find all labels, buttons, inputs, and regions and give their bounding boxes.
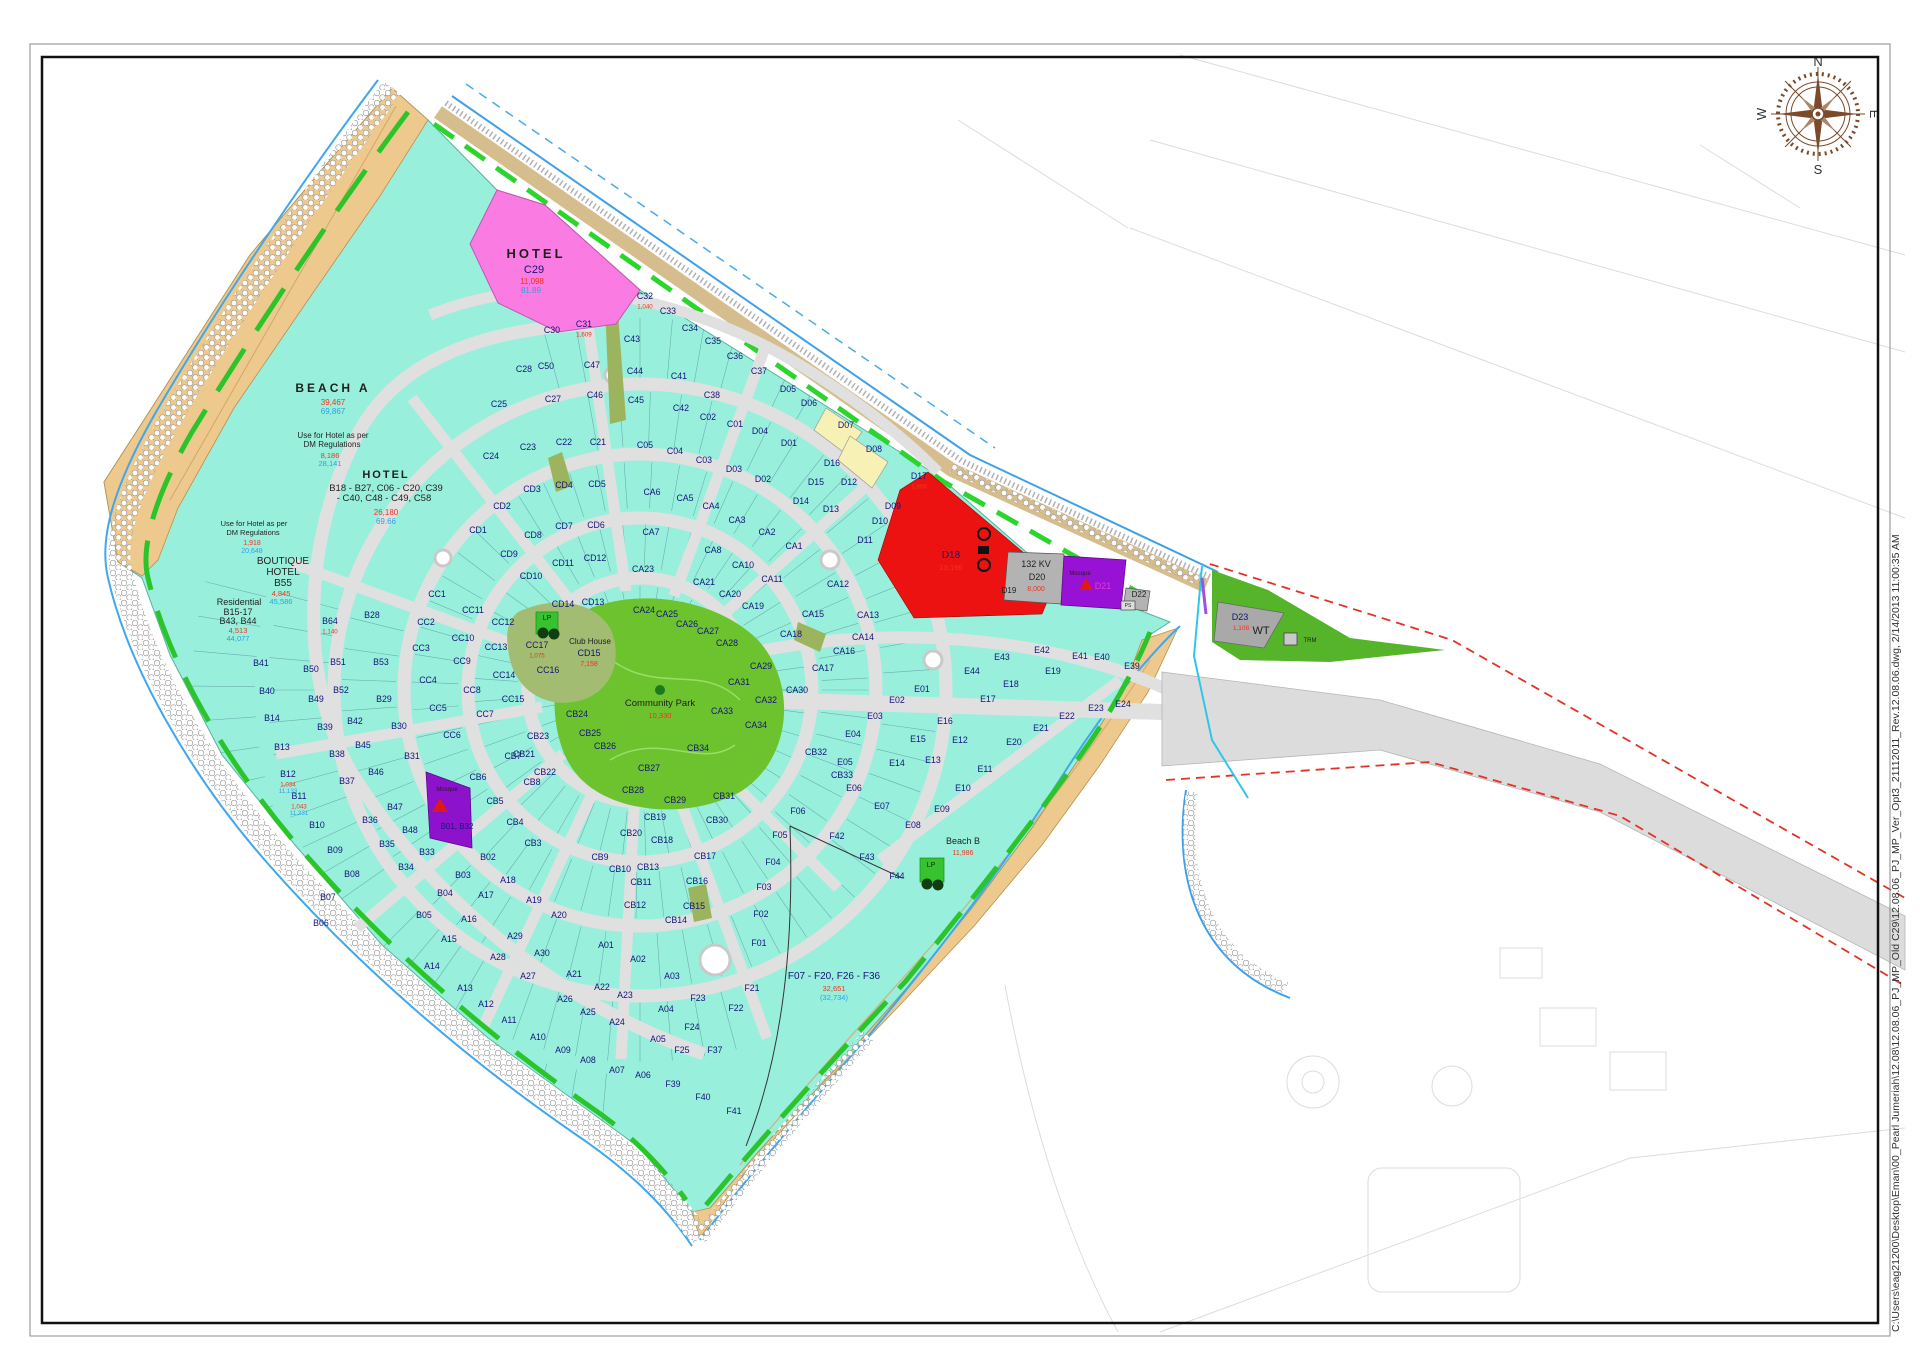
plot-label-E07: E07 bbox=[874, 801, 890, 811]
plot-label-C21: C21 bbox=[590, 437, 606, 447]
plot-label-F24: F24 bbox=[684, 1022, 699, 1032]
plot-label-E20: E20 bbox=[1006, 737, 1022, 747]
plot-label-CB19: CB19 bbox=[644, 812, 666, 822]
plot-label-CA2: CA2 bbox=[758, 527, 775, 537]
plot-label-CB31: CB31 bbox=[713, 791, 735, 801]
map-label-57: B01, B32 bbox=[441, 822, 474, 831]
compass-east: E bbox=[1867, 110, 1882, 119]
map-label-32: D19 bbox=[1002, 586, 1017, 595]
plot-label-B41: B41 bbox=[253, 658, 269, 668]
plot-label-A26: A26 bbox=[557, 994, 573, 1004]
plot-label-D13: D13 bbox=[823, 504, 839, 514]
plot-label-E18: E18 bbox=[1003, 679, 1019, 689]
parcel-line bbox=[320, 960, 365, 1004]
plot-label-CA10: CA10 bbox=[732, 560, 754, 570]
plot-label-E08: E08 bbox=[905, 820, 921, 830]
map-label-30: D18 bbox=[942, 550, 961, 561]
plot-label-C31: C31 bbox=[576, 319, 592, 329]
plot-label-B08: B08 bbox=[344, 869, 360, 879]
plot-label-E14: E14 bbox=[889, 758, 905, 768]
roundabout-south bbox=[700, 945, 730, 975]
compass-south: S bbox=[1814, 162, 1823, 177]
map-label-40: D23 bbox=[1232, 612, 1249, 622]
plot-label-CA32: CA32 bbox=[755, 695, 777, 705]
drawing-sheet: C30C311,609C321,040C33C34C35C36C37C43C50… bbox=[0, 0, 1920, 1357]
plot-label-E40: E40 bbox=[1094, 652, 1110, 662]
plot-label-C45: C45 bbox=[628, 395, 644, 405]
map-label-42: WT bbox=[1252, 625, 1269, 637]
plot-label-B45: B45 bbox=[355, 740, 371, 750]
plot-label-A01: A01 bbox=[598, 940, 614, 950]
plot-label-A11: A11 bbox=[502, 1015, 517, 1025]
map-label-2: 11,098 bbox=[520, 277, 544, 286]
plot-label-CA3: CA3 bbox=[728, 515, 745, 525]
plot-label-E42: E42 bbox=[1034, 645, 1050, 655]
plot-label-CD12: CD12 bbox=[584, 553, 607, 563]
plot-label-B14: B14 bbox=[264, 713, 280, 723]
plot-area-B64: 1,140 bbox=[322, 629, 338, 636]
plot-label-CB6: CB6 bbox=[469, 772, 486, 782]
plot-area-CC17: 1,075 bbox=[529, 653, 545, 660]
plot-label-C05: C05 bbox=[637, 440, 653, 450]
plot-label-CB22: CB22 bbox=[534, 767, 556, 777]
plot-label-A04: A04 bbox=[658, 1004, 674, 1014]
plot-label-C35: C35 bbox=[705, 336, 721, 346]
plot-label-F23: F23 bbox=[690, 993, 705, 1003]
plot-label-E43: E43 bbox=[994, 652, 1010, 662]
plot-label-CC14: CC14 bbox=[493, 670, 516, 680]
plot-label-D17: D17 bbox=[911, 471, 927, 481]
plot-label-CC3: CC3 bbox=[412, 643, 430, 653]
plot-label-CC1: CC1 bbox=[428, 589, 446, 599]
plot-label-CD2: CD2 bbox=[493, 501, 511, 511]
plot-label-A27: A27 bbox=[520, 971, 536, 981]
east-corridor bbox=[1162, 564, 1905, 998]
plot-label-CA23: CA23 bbox=[632, 564, 654, 574]
plot-label-CB28: CB28 bbox=[622, 785, 644, 795]
map-label-8: DM Regulations bbox=[304, 440, 361, 449]
plot-label-E10: E10 bbox=[955, 783, 971, 793]
plot-label-CC15: CC15 bbox=[502, 694, 525, 704]
map-label-25: Residential bbox=[217, 597, 262, 607]
plot-label-CB24: CB24 bbox=[566, 709, 588, 719]
plot-label-D14: D14 bbox=[793, 496, 809, 506]
plot-label-B07: B07 bbox=[320, 892, 336, 902]
plot-label-B03: B03 bbox=[455, 870, 471, 880]
map-label-27: B43, B44 bbox=[219, 616, 256, 626]
plot-area-C32: 1,040 bbox=[637, 304, 653, 311]
parcel-line bbox=[346, 981, 387, 1029]
plot-label-B37: B37 bbox=[339, 776, 355, 786]
map-label-5: 39,467 bbox=[321, 398, 346, 407]
plot-label-A17: A17 bbox=[478, 890, 494, 900]
map-label-4: BEACH A bbox=[295, 381, 370, 395]
plot-label-B31: B31 bbox=[404, 751, 420, 761]
plot-label-CC7: CC7 bbox=[476, 709, 494, 719]
plot-label-D10: D10 bbox=[872, 516, 888, 526]
utility-square-icon bbox=[978, 546, 989, 554]
plot-label-C01: C01 bbox=[727, 419, 743, 429]
plot-label-C38: C38 bbox=[704, 390, 720, 400]
map-label-46: Club House bbox=[569, 637, 611, 646]
plot-label-F42: F42 bbox=[829, 831, 844, 841]
map-label-56: Mosque bbox=[436, 787, 458, 793]
plot-label-B49: B49 bbox=[308, 694, 324, 704]
plot-label-A19: A19 bbox=[526, 895, 542, 905]
plot-label-CB34: CB34 bbox=[687, 743, 709, 753]
plot-label-C33: C33 bbox=[660, 306, 676, 316]
plot-label-CD14: CD14 bbox=[552, 599, 575, 609]
plot-label-A25: A25 bbox=[580, 1007, 596, 1017]
plot-label-B48: B48 bbox=[402, 825, 418, 835]
plot-label-D12: D12 bbox=[841, 477, 857, 487]
plot-label-A03: A03 bbox=[664, 971, 680, 981]
tree-icon bbox=[655, 685, 665, 695]
plot-label-D06: D06 bbox=[801, 398, 817, 408]
plot-label-E09: E09 bbox=[934, 804, 950, 814]
plot-label-CC2: CC2 bbox=[417, 617, 435, 627]
map-label-54: 32,651 bbox=[823, 984, 846, 993]
plot-label-B33: B33 bbox=[419, 847, 435, 857]
plot-label-A16: A16 bbox=[461, 914, 477, 924]
plot-label-D11: D11 bbox=[857, 535, 873, 545]
map-label-0: HOTEL bbox=[506, 246, 565, 261]
plot-label-CB25: CB25 bbox=[579, 728, 601, 738]
map-label-13: - C40, C48 - C49, C58 bbox=[337, 493, 432, 504]
plot-label-CB17: CB17 bbox=[694, 851, 716, 861]
plot-label-CA30: CA30 bbox=[786, 685, 808, 695]
plot-label-D01: D01 bbox=[781, 438, 797, 448]
plot-label-CA31: CA31 bbox=[728, 677, 750, 687]
plot-label-C27: C27 bbox=[545, 394, 561, 404]
plot-label-CC17: CC17 bbox=[526, 640, 549, 650]
map-label-24: 45,586 bbox=[270, 597, 293, 606]
plot-label-E02: E02 bbox=[889, 695, 905, 705]
plot-label-C28: C28 bbox=[516, 364, 532, 374]
plot-label-CB8: CB8 bbox=[523, 777, 540, 787]
plot-label-D07: D07 bbox=[838, 420, 854, 430]
plot-area2-B11: 11,231 bbox=[290, 810, 309, 817]
plot-label-B04: B04 bbox=[437, 888, 453, 898]
plot-label-CC10: CC10 bbox=[452, 633, 475, 643]
plot-label-CD8: CD8 bbox=[524, 530, 542, 540]
plot-label-CA4: CA4 bbox=[702, 501, 719, 511]
file-path-stamp: C:\Users\eag21200\Desktop\Eman\00_Pearl … bbox=[1890, 534, 1902, 1332]
plot-label-E39: E39 bbox=[1124, 661, 1140, 671]
plot-label-B53: B53 bbox=[373, 657, 389, 667]
plot-label-CD7: CD7 bbox=[555, 521, 573, 531]
plot-area-D17: 1,858 bbox=[911, 484, 927, 491]
map-label-33: 132 KV bbox=[1021, 559, 1051, 569]
map-label-51: Beach B bbox=[946, 836, 980, 846]
map-label-29: 44,077 bbox=[227, 634, 250, 643]
plot-label-B36: B36 bbox=[362, 815, 378, 825]
map-label-43: TRM bbox=[1304, 638, 1317, 644]
map-label-55: (32,734) bbox=[820, 993, 848, 1002]
parcel-line bbox=[374, 999, 411, 1050]
map-label-47: CD15 bbox=[577, 648, 600, 658]
plot-label-CA16: CA16 bbox=[833, 646, 855, 656]
map-label-44: LP bbox=[543, 615, 552, 622]
plot-label-F04: F04 bbox=[765, 857, 780, 867]
plot-label-C04: C04 bbox=[667, 446, 683, 456]
plot-label-E22: E22 bbox=[1059, 711, 1075, 721]
plot-label-C46: C46 bbox=[587, 390, 603, 400]
roundabout bbox=[821, 551, 839, 569]
map-label-19: 20,648 bbox=[241, 548, 263, 555]
plot-label-CC6: CC6 bbox=[443, 730, 461, 740]
plot-label-B11: B11 bbox=[292, 791, 307, 801]
plot-label-B06: B06 bbox=[313, 918, 329, 928]
plot-label-CB18: CB18 bbox=[651, 835, 673, 845]
plot-label-CC11: CC11 bbox=[462, 605, 484, 615]
plot-label-B35: B35 bbox=[379, 839, 395, 849]
plot-label-D05: D05 bbox=[780, 384, 796, 394]
plot-label-B28: B28 bbox=[364, 610, 380, 620]
map-label-20: BOUTIQUE bbox=[257, 556, 310, 567]
plot-label-F22: F22 bbox=[728, 1003, 743, 1013]
plot-label-CC16: CC16 bbox=[537, 665, 560, 675]
compass-west: W bbox=[1754, 107, 1769, 120]
plot-label-C42: C42 bbox=[673, 403, 689, 413]
map-label-53: F07 - F20, F26 - F36 bbox=[788, 971, 881, 982]
plot-label-A18: A18 bbox=[500, 875, 516, 885]
plot-label-B02: B02 bbox=[480, 852, 496, 862]
plot-label-A12: A12 bbox=[478, 999, 494, 1009]
map-label-45: LP bbox=[927, 862, 936, 869]
plot-label-C34: C34 bbox=[682, 323, 698, 333]
map-label-21: HOTEL bbox=[266, 567, 300, 578]
plot-label-F21: F21 bbox=[744, 983, 759, 993]
plot-label-B13: B13 bbox=[274, 742, 290, 752]
map-label-31: 13,196 bbox=[940, 563, 963, 572]
plot-label-C47: C47 bbox=[584, 360, 600, 370]
map-label-6: 69,867 bbox=[321, 407, 346, 416]
plot-label-F25: F25 bbox=[674, 1045, 689, 1055]
plot-label-CB3: CB3 bbox=[524, 838, 541, 848]
map-label-14: 26,180 bbox=[374, 508, 399, 517]
map-label-11: HOTEL bbox=[362, 469, 409, 481]
map-label-17: DM Regulations bbox=[226, 528, 280, 537]
plot-label-CA14: CA14 bbox=[852, 632, 874, 642]
map-label-1: C29 bbox=[524, 264, 544, 276]
plot-label-E11: E11 bbox=[978, 764, 993, 774]
plot-label-D09: D09 bbox=[885, 501, 901, 511]
plot-label-CD5: CD5 bbox=[588, 479, 606, 489]
plot-label-A23: A23 bbox=[617, 990, 633, 1000]
plot-label-CA13: CA13 bbox=[857, 610, 879, 620]
plot-label-CD10: CD10 bbox=[520, 571, 543, 581]
trm-box-icon bbox=[1284, 633, 1297, 645]
plot-label-D15: D15 bbox=[808, 477, 824, 487]
plot-label-CA19: CA19 bbox=[742, 601, 764, 611]
plot-area-C31: 1,609 bbox=[576, 332, 592, 339]
plot-label-CA15: CA15 bbox=[802, 609, 824, 619]
plot-label-CB14: CB14 bbox=[665, 915, 687, 925]
master-plan-map: C30C311,609C321,040C33C34C35C36C37C43C50… bbox=[0, 0, 1920, 1357]
plot-label-CA11: CA11 bbox=[761, 574, 782, 584]
plot-label-CA34: CA34 bbox=[745, 720, 767, 730]
plot-label-A28: A28 bbox=[490, 952, 506, 962]
plot-label-F02: F02 bbox=[753, 909, 768, 919]
plot-label-CB4: CB4 bbox=[506, 817, 523, 827]
plot-label-E23: E23 bbox=[1088, 703, 1104, 713]
plot-label-B47: B47 bbox=[387, 802, 403, 812]
plot-label-B64: B64 bbox=[322, 616, 338, 626]
plot-label-E15: E15 bbox=[910, 734, 926, 744]
revetment-corridor bbox=[1189, 792, 1286, 988]
plot-label-C44: C44 bbox=[627, 366, 643, 376]
map-label-7: Use for Hotel as per bbox=[297, 431, 368, 440]
plot-label-A24: A24 bbox=[609, 1017, 625, 1027]
plot-label-F03: F03 bbox=[756, 882, 771, 892]
mosque-plot-d21 bbox=[1061, 556, 1126, 609]
plot-label-CD4: CD4 bbox=[555, 480, 573, 490]
plot-label-CB7: CB7 bbox=[504, 751, 521, 761]
plot-label-B10: B10 bbox=[309, 820, 325, 830]
plot-label-A13: A13 bbox=[457, 983, 473, 993]
plot-label-F40: F40 bbox=[695, 1092, 710, 1102]
plot-label-A07: A07 bbox=[609, 1065, 625, 1075]
plot-label-CB9: CB9 bbox=[591, 852, 608, 862]
plot-label-CA29: CA29 bbox=[750, 661, 772, 671]
map-label-50: 10,330 bbox=[649, 711, 672, 720]
plot-label-C50: C50 bbox=[538, 361, 554, 371]
plot-label-B38: B38 bbox=[329, 749, 345, 759]
plot-label-E04: E04 bbox=[845, 729, 861, 739]
plot-label-B51: B51 bbox=[330, 657, 346, 667]
plot-label-F41: F41 bbox=[726, 1106, 741, 1116]
plot-label-CB30: CB30 bbox=[706, 815, 728, 825]
plot-label-C36: C36 bbox=[727, 351, 743, 361]
plot-label-A29: A29 bbox=[507, 931, 523, 941]
plot-label-F05: F05 bbox=[772, 830, 787, 840]
map-label-22: B55 bbox=[274, 578, 292, 589]
plot-label-F44: F44 bbox=[889, 871, 904, 881]
plot-label-A20: A20 bbox=[551, 910, 567, 920]
plot-label-E44: E44 bbox=[964, 666, 980, 676]
plot-label-C32: C32 bbox=[637, 291, 653, 301]
plot-label-CA27: CA27 bbox=[697, 626, 719, 636]
plot-label-A30: A30 bbox=[534, 948, 550, 958]
plot-label-CB29: CB29 bbox=[664, 795, 686, 805]
plot-label-CB12: CB12 bbox=[624, 900, 646, 910]
plot-label-CC5: CC5 bbox=[429, 703, 447, 713]
compass-rose-icon: N S W E bbox=[1754, 54, 1882, 177]
roundabout bbox=[435, 550, 451, 566]
plot-label-CB23: CB23 bbox=[527, 731, 549, 741]
plot-label-CB11: CB11 bbox=[630, 877, 651, 887]
map-label-49: Community Park bbox=[625, 698, 695, 709]
plot-label-A05: A05 bbox=[650, 1034, 666, 1044]
plot-label-CA21: CA21 bbox=[693, 577, 715, 587]
plot-label-CA20: CA20 bbox=[719, 589, 741, 599]
plot-label-A09: A09 bbox=[555, 1045, 571, 1055]
plot-label-CC12: CC12 bbox=[492, 617, 515, 627]
plot-label-CB33: CB33 bbox=[831, 770, 853, 780]
plot-label-B40: B40 bbox=[259, 686, 275, 696]
plot-label-E12: E12 bbox=[952, 735, 968, 745]
plot-label-CB13: CB13 bbox=[637, 862, 659, 872]
plot-label-E21: E21 bbox=[1033, 723, 1049, 733]
plot-label-A06: A06 bbox=[635, 1070, 651, 1080]
plot-label-CA28: CA28 bbox=[716, 638, 738, 648]
map-label-16: Use for Hotel as per bbox=[221, 519, 288, 528]
plot-label-CB5: CB5 bbox=[486, 796, 503, 806]
map-label-41: 1,108 bbox=[1233, 625, 1250, 632]
plot-label-B50: B50 bbox=[303, 664, 319, 674]
plot-label-CA6: CA6 bbox=[643, 487, 660, 497]
plot-label-E41: E41 bbox=[1072, 651, 1088, 661]
map-label-15: 69.66 bbox=[376, 517, 397, 526]
plot-label-CA18: CA18 bbox=[780, 629, 802, 639]
plot-label-D03: D03 bbox=[726, 464, 742, 474]
plot-label-A22: A22 bbox=[594, 982, 610, 992]
plot-label-C24: C24 bbox=[483, 451, 499, 461]
plot-label-CA12: CA12 bbox=[827, 579, 849, 589]
plot-label-C03: C03 bbox=[696, 455, 712, 465]
map-label-38: D22 bbox=[1132, 590, 1147, 599]
map-label-18: 1,918 bbox=[243, 540, 261, 547]
plot-label-CB10: CB10 bbox=[609, 864, 631, 874]
plot-label-B46: B46 bbox=[368, 767, 384, 777]
plot-label-E24: E24 bbox=[1115, 699, 1131, 709]
plot-label-CB26: CB26 bbox=[594, 741, 616, 751]
plot-label-C30: C30 bbox=[544, 325, 560, 335]
plot-label-C23: C23 bbox=[520, 442, 536, 452]
plot-label-C22: C22 bbox=[556, 437, 572, 447]
parcel-line bbox=[297, 937, 345, 977]
plot-label-B12: B12 bbox=[280, 769, 296, 779]
plot-label-CA24: CA24 bbox=[633, 605, 655, 615]
plot-label-CC8: CC8 bbox=[463, 685, 481, 695]
plot-label-CA17: CA17 bbox=[812, 663, 834, 673]
plot-label-C43: C43 bbox=[624, 334, 640, 344]
plot-label-B34: B34 bbox=[398, 862, 414, 872]
plot-label-E13: E13 bbox=[925, 755, 941, 765]
plot-label-CA8: CA8 bbox=[704, 545, 721, 555]
plot-label-CA7: CA7 bbox=[642, 527, 659, 537]
map-label-36: Mosque bbox=[1069, 571, 1091, 577]
plot-label-CD1: CD1 bbox=[469, 525, 487, 535]
plot-label-E01: E01 bbox=[914, 684, 930, 694]
plot-label-C25: C25 bbox=[491, 399, 507, 409]
plot-label-E06: E06 bbox=[846, 783, 862, 793]
map-label-39: PS bbox=[1125, 603, 1132, 609]
plot-label-CB27: CB27 bbox=[638, 763, 660, 773]
map-label-52: 11,986 bbox=[953, 850, 974, 857]
plot-label-B42: B42 bbox=[347, 716, 363, 726]
plot-label-A14: A14 bbox=[424, 961, 440, 971]
plot-label-CA26: CA26 bbox=[676, 619, 698, 629]
plot-label-E16: E16 bbox=[937, 716, 953, 726]
roundabout bbox=[924, 651, 942, 669]
plot-label-A08: A08 bbox=[580, 1055, 596, 1065]
plot-label-B29: B29 bbox=[376, 694, 392, 704]
plot-label-E03: E03 bbox=[867, 711, 883, 721]
plot-label-CA33: CA33 bbox=[711, 706, 733, 716]
plot-label-D08: D08 bbox=[866, 444, 882, 454]
plot-label-A15: A15 bbox=[441, 934, 457, 944]
plot-label-D16: D16 bbox=[824, 458, 840, 468]
plot-label-CB15: CB15 bbox=[683, 901, 705, 911]
plot-label-B30: B30 bbox=[391, 721, 407, 731]
corridor-road bbox=[1162, 672, 1905, 970]
plot-label-B39: B39 bbox=[317, 722, 333, 732]
plot-label-CA5: CA5 bbox=[676, 493, 693, 503]
plot-label-A10: A10 bbox=[530, 1032, 546, 1042]
plot-label-CB16: CB16 bbox=[686, 876, 708, 886]
